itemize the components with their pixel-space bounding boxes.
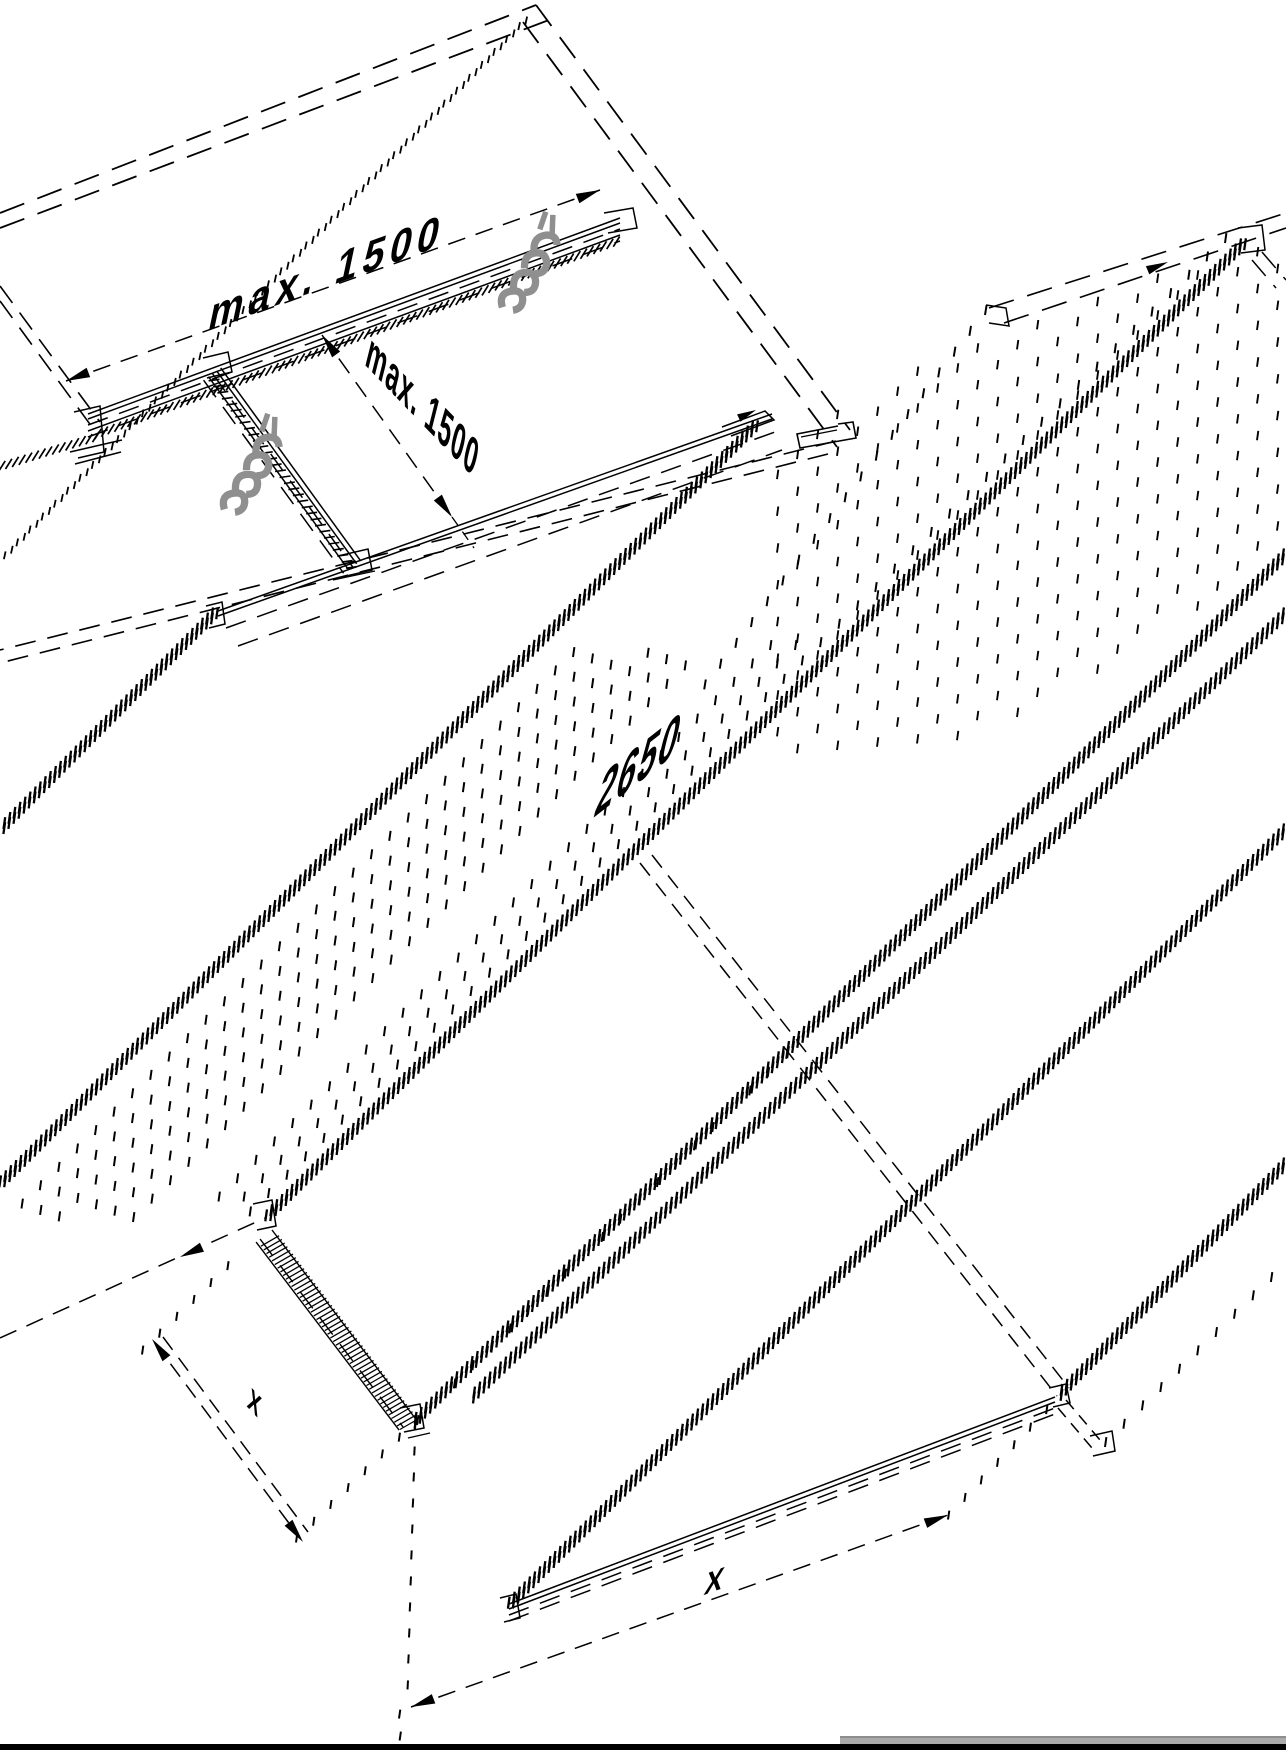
svg-text:max. 1500: max. 1500 <box>361 321 484 488</box>
svg-text:max. 1500: max. 1500 <box>204 203 450 341</box>
svg-text:X: X <box>702 1560 728 1602</box>
svg-text:X: X <box>245 1381 264 1424</box>
